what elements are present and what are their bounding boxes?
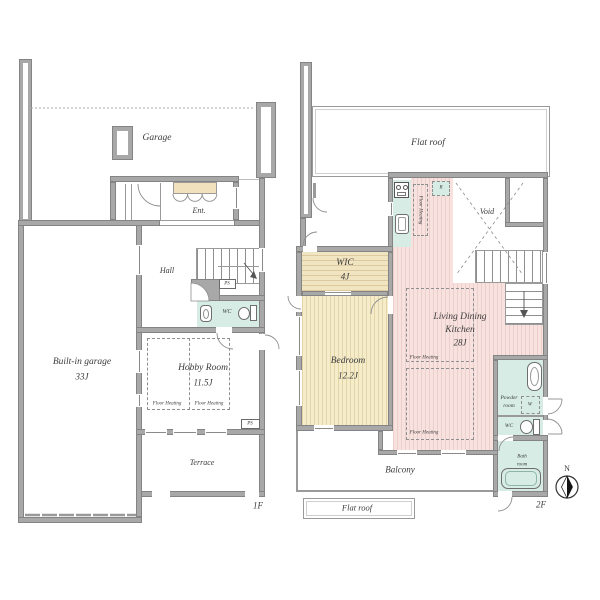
toilet	[238, 307, 250, 320]
floor-heating-label: Floor Heating	[195, 401, 224, 406]
wc2-label: WC	[505, 424, 513, 430]
toilet	[520, 420, 533, 434]
ldk-size: 28J	[454, 338, 467, 347]
fridge-label: R	[439, 185, 442, 190]
closet-shelf-line	[125, 184, 126, 220]
closet-door-arc	[138, 184, 160, 206]
sink-basin	[398, 217, 406, 231]
wc1-label: WC	[223, 309, 232, 315]
wall	[378, 431, 383, 450]
floorplan-page: { "floor1": { "floor_label": "1F", "gara…	[0, 0, 600, 600]
door-opening	[543, 397, 548, 415]
bath-room-label-line1: Bath	[517, 454, 526, 459]
floor-heating-divider	[189, 338, 190, 410]
closet-shelf-line	[131, 184, 132, 220]
garage-label: Garage	[142, 134, 171, 144]
pillar	[19, 59, 32, 223]
window	[397, 450, 417, 455]
terrace-label: Terrace	[190, 459, 215, 467]
sink-basin	[530, 367, 539, 386]
bedroom-size: 12.2J	[338, 371, 358, 380]
roof-door-arc	[313, 198, 327, 212]
door-opening	[259, 334, 265, 350]
terrace-opening	[245, 491, 259, 497]
pillar	[112, 126, 133, 160]
bath-room-label-line2: room	[517, 462, 527, 467]
builtin-garage-label: Built-in garage	[53, 358, 111, 368]
floor-plan-canvas: Garage Ent. Hall Built-in garage 33J Hob…	[0, 0, 600, 600]
entrance-step	[160, 220, 234, 226]
powder-room-label-line1: Powder	[500, 396, 517, 402]
stairs-2f-upper	[475, 250, 543, 283]
entrance-label: Ent.	[192, 207, 205, 215]
wall	[493, 355, 548, 360]
wall	[543, 178, 548, 497]
cabinet-door-arcs	[173, 194, 217, 201]
compass-icon	[556, 476, 578, 498]
builtin-garage-size: 33J	[76, 372, 89, 381]
roof-screen	[313, 183, 316, 198]
hobby-room-size: 11.5J	[193, 378, 212, 387]
porch-line	[239, 179, 259, 180]
wall-chunk	[191, 279, 220, 301]
sink	[200, 305, 212, 322]
flat-roof-bottom-label: Flat roof	[342, 504, 372, 513]
door-opening	[388, 296, 393, 314]
bathtub	[501, 468, 541, 489]
hobby-room-label: Hobby Room	[178, 364, 228, 374]
side-door-arc	[265, 335, 279, 349]
kitchen-sink	[395, 214, 409, 234]
front-door	[233, 187, 239, 209]
wall	[388, 172, 548, 178]
floor-heating-label: Floor Heating	[410, 430, 439, 435]
balcony-rail	[296, 431, 298, 492]
window	[205, 429, 227, 435]
bathtub-inner	[505, 471, 537, 486]
window	[314, 425, 334, 431]
window	[173, 429, 197, 435]
floor2-tag: 2F	[536, 500, 546, 509]
wall	[505, 222, 548, 227]
bedroom-label: Bedroom	[331, 357, 365, 367]
window	[296, 316, 302, 356]
window	[136, 394, 142, 407]
wall	[110, 182, 116, 220]
pillar	[300, 62, 312, 218]
stairs-1f-divider	[218, 266, 260, 267]
flat-roof-top-label: Flat roof	[411, 139, 445, 149]
toilet-tank	[250, 305, 257, 321]
wall	[18, 220, 160, 226]
door-opening	[498, 491, 512, 497]
wall	[388, 252, 393, 431]
wic-sliding-door	[325, 291, 351, 296]
door-opening	[296, 296, 302, 312]
vanity-sink	[527, 362, 542, 391]
sink-basin	[203, 309, 209, 319]
floor-heating-label: Floor Heating	[153, 401, 182, 406]
balcony-label: Balcony	[385, 465, 415, 474]
window	[388, 202, 393, 216]
wall	[136, 327, 265, 333]
window	[441, 450, 466, 455]
floor-heating-label: Floor Heating	[410, 355, 439, 360]
floor1-tag: 1F	[253, 501, 263, 510]
floor-heating-zone	[406, 368, 474, 440]
closet-divider	[160, 183, 161, 220]
toilet-tank	[533, 419, 540, 435]
shoe-cabinet	[173, 182, 217, 194]
void-label: Void	[480, 208, 494, 216]
burner	[396, 185, 401, 190]
washer-label: W	[528, 402, 532, 407]
wall	[493, 360, 498, 497]
wall	[18, 220, 24, 523]
door-opening	[303, 246, 317, 252]
balcony-rail	[296, 490, 496, 492]
kitchen-floor-heating-label: Floor Heating	[417, 196, 422, 225]
hall-label: Hall	[160, 267, 174, 275]
window	[136, 245, 142, 275]
wall-thin	[498, 415, 543, 417]
burner	[403, 185, 408, 190]
stairs-2f-lower	[505, 283, 543, 325]
window	[543, 252, 548, 284]
window	[296, 370, 302, 406]
terrace-opening	[152, 491, 170, 497]
wall	[18, 517, 142, 523]
wall	[378, 450, 498, 455]
window	[259, 248, 265, 272]
door-opening	[498, 435, 513, 441]
ps-label: PS	[247, 421, 253, 426]
ldk-label-line2: Kitchen	[445, 326, 475, 336]
compass-north-label: N	[564, 465, 570, 473]
bath-balcony-door-arc	[498, 497, 512, 511]
window	[136, 350, 142, 373]
door-opening	[216, 327, 232, 333]
powder-door-arcs	[548, 399, 562, 434]
ldk-label-line1: Living Dining	[433, 313, 486, 323]
pillar	[256, 102, 276, 178]
wic-size: 4J	[341, 272, 350, 281]
powder-room-label-line2: room	[503, 404, 514, 410]
window	[145, 429, 167, 435]
stove	[394, 182, 409, 198]
wall	[505, 178, 510, 227]
wic-label: WIC	[336, 259, 353, 269]
grill	[397, 192, 406, 196]
ps-label: PS	[224, 281, 230, 286]
door-opening	[543, 420, 548, 435]
